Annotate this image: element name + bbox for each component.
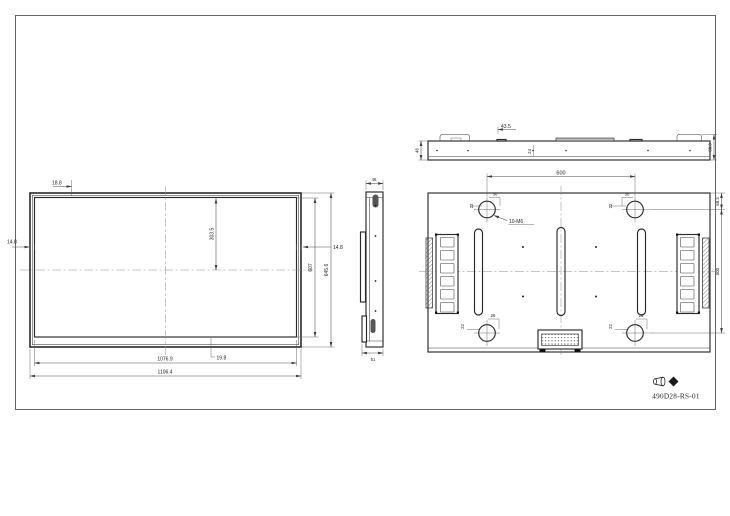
dim-label: 500 [715,267,720,275]
dim-label: 14.8 [333,245,343,251]
dim-label: 607 [308,263,314,272]
dim-label: 1076.9 [157,357,173,363]
dim-label: 1106.4 [158,370,173,376]
dim-label: 68.3 [708,143,713,152]
left-handle-bracket [440,135,470,142]
center-raised-strip [556,138,614,141]
dim-label: 43.5 [501,124,511,130]
callout-label: 10-M6 [509,219,523,225]
dim-label: 600 [556,171,565,177]
small-tab [497,140,506,142]
drawing-number: 490D28-RS-01 [652,393,700,401]
connector-block-left [426,234,459,314]
bottom-bracket [362,316,367,342]
dim-label: 30 [625,192,630,197]
dim-label: 46 [372,177,377,182]
hatched-rail [703,238,710,308]
projection-symbol-icon [653,377,665,386]
title-block: 490D28-RS-01 [652,377,700,401]
dim-label: 22 [608,324,613,329]
dim-label: 24 [527,149,532,154]
back-outline [428,193,710,352]
connector-block-right [676,234,709,314]
dim-label: 18.8 [52,181,62,187]
dim-label: 51 [371,357,376,362]
hatched-rail [426,238,433,308]
small-tab [630,140,642,142]
vent-grille [538,330,582,352]
top-outline [428,141,710,160]
dim-label: 68.3 [715,197,720,206]
dim-label: 22 [608,203,613,208]
dim-label: 19.8 [217,356,227,362]
dim-bracket-offset: 43.5 [498,124,516,134]
dim-label: 303.5 [210,228,216,241]
dim-label: 14.8 [7,240,17,246]
dim-center-height: 303.5 [210,199,217,271]
dim-overall-height: 645.6 [301,193,335,347]
dim-label: 22 [460,324,465,329]
top-view: 43.5 24 46 68.3 [415,124,718,160]
dim-label: 46 [415,148,420,153]
block-outline [436,235,458,314]
side-shaded-bottom [371,319,376,333]
wall-bracket-rail [361,232,366,302]
front-view: 18.8 14.8 14.8 303.5 607 [7,180,343,379]
right-handle-bracket [677,135,702,142]
vent-dot-grid [542,334,579,346]
drawing-sheet: 18.8 14.8 14.8 303.5 607 [0,0,730,516]
vent-foot [575,349,581,352]
technical-drawing: 18.8 14.8 14.8 303.5 607 [0,0,730,516]
dim-active-height: 607 [297,198,319,337]
dim-side-depth-top: 46 [366,177,383,190]
back-view: 600 10-M6 22 30 22 30 [419,171,725,359]
dim-bezel-bottom: 19.8 [211,338,226,362]
dim-bezel-right: 14.8 [297,244,343,251]
dim-top-depth-left: 46 [415,141,429,160]
side-view: 46 51 [361,177,384,362]
vent-foot [540,349,546,352]
dim-label: 30 [493,192,498,197]
dim-label: 22 [469,203,474,208]
dim-label: 645.6 [324,264,330,277]
dim-label: 26 [491,313,496,318]
diamond-symbol-icon [669,377,679,387]
